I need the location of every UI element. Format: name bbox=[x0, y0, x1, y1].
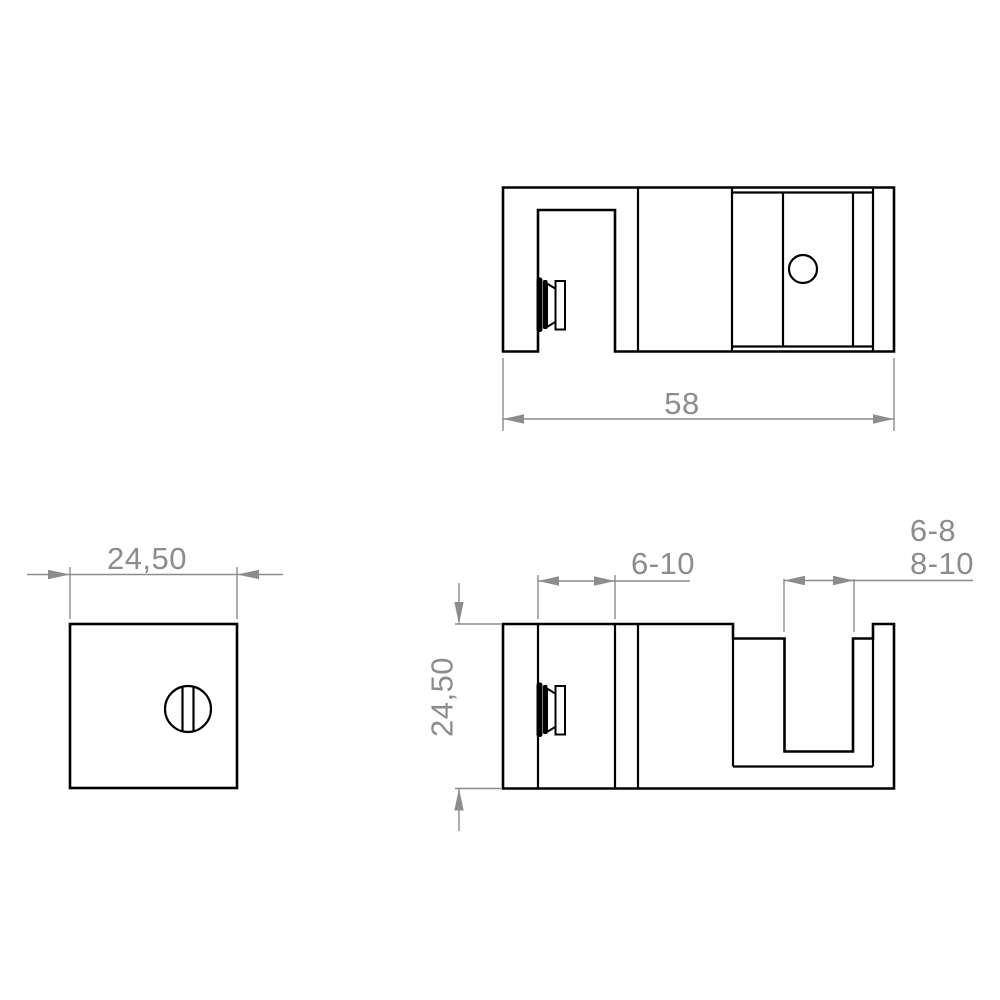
plan-view: 6-10 6-8 8-10 24,50 bbox=[425, 513, 975, 831]
arrow-left-icon bbox=[237, 570, 259, 579]
dim-overall-width: 58 bbox=[503, 358, 894, 431]
dim-label: 6-8 bbox=[910, 513, 956, 548]
hole bbox=[789, 255, 817, 283]
side-view: 58 bbox=[503, 188, 894, 432]
set-screw bbox=[537, 278, 566, 333]
screw-thread bbox=[537, 278, 543, 333]
screw-head bbox=[165, 686, 211, 732]
technical-drawing-canvas: 58 24,50 bbox=[0, 0, 1000, 1000]
front-view: 24,50 bbox=[27, 541, 283, 788]
arrow-down-icon bbox=[454, 602, 463, 624]
arrow-up-icon bbox=[454, 789, 463, 811]
dim-label: 6-10 bbox=[631, 546, 695, 581]
arrow-left-icon bbox=[784, 576, 805, 585]
dim-front-width: 24,50 bbox=[27, 541, 283, 619]
dim-label: 58 bbox=[664, 386, 699, 421]
dim-label: 24,50 bbox=[107, 541, 187, 576]
arrow-left-icon bbox=[538, 576, 559, 585]
set-screw bbox=[537, 683, 566, 738]
part-outline bbox=[70, 624, 237, 788]
screw-pad bbox=[556, 281, 566, 330]
dim-plan-height: 24,50 bbox=[425, 583, 502, 831]
dim-label: 8-10 bbox=[910, 546, 974, 581]
dim-label: 24,50 bbox=[425, 657, 460, 737]
arrow-right-icon bbox=[594, 576, 615, 585]
arrow-right-icon bbox=[48, 570, 70, 579]
arrow-right-icon bbox=[873, 414, 894, 423]
dim-glass-slot: 6-8 8-10 bbox=[784, 513, 974, 632]
arrow-right-icon bbox=[833, 576, 854, 585]
arrow-left-icon bbox=[503, 414, 524, 423]
dim-jaw-opening: 6-10 bbox=[538, 546, 695, 619]
